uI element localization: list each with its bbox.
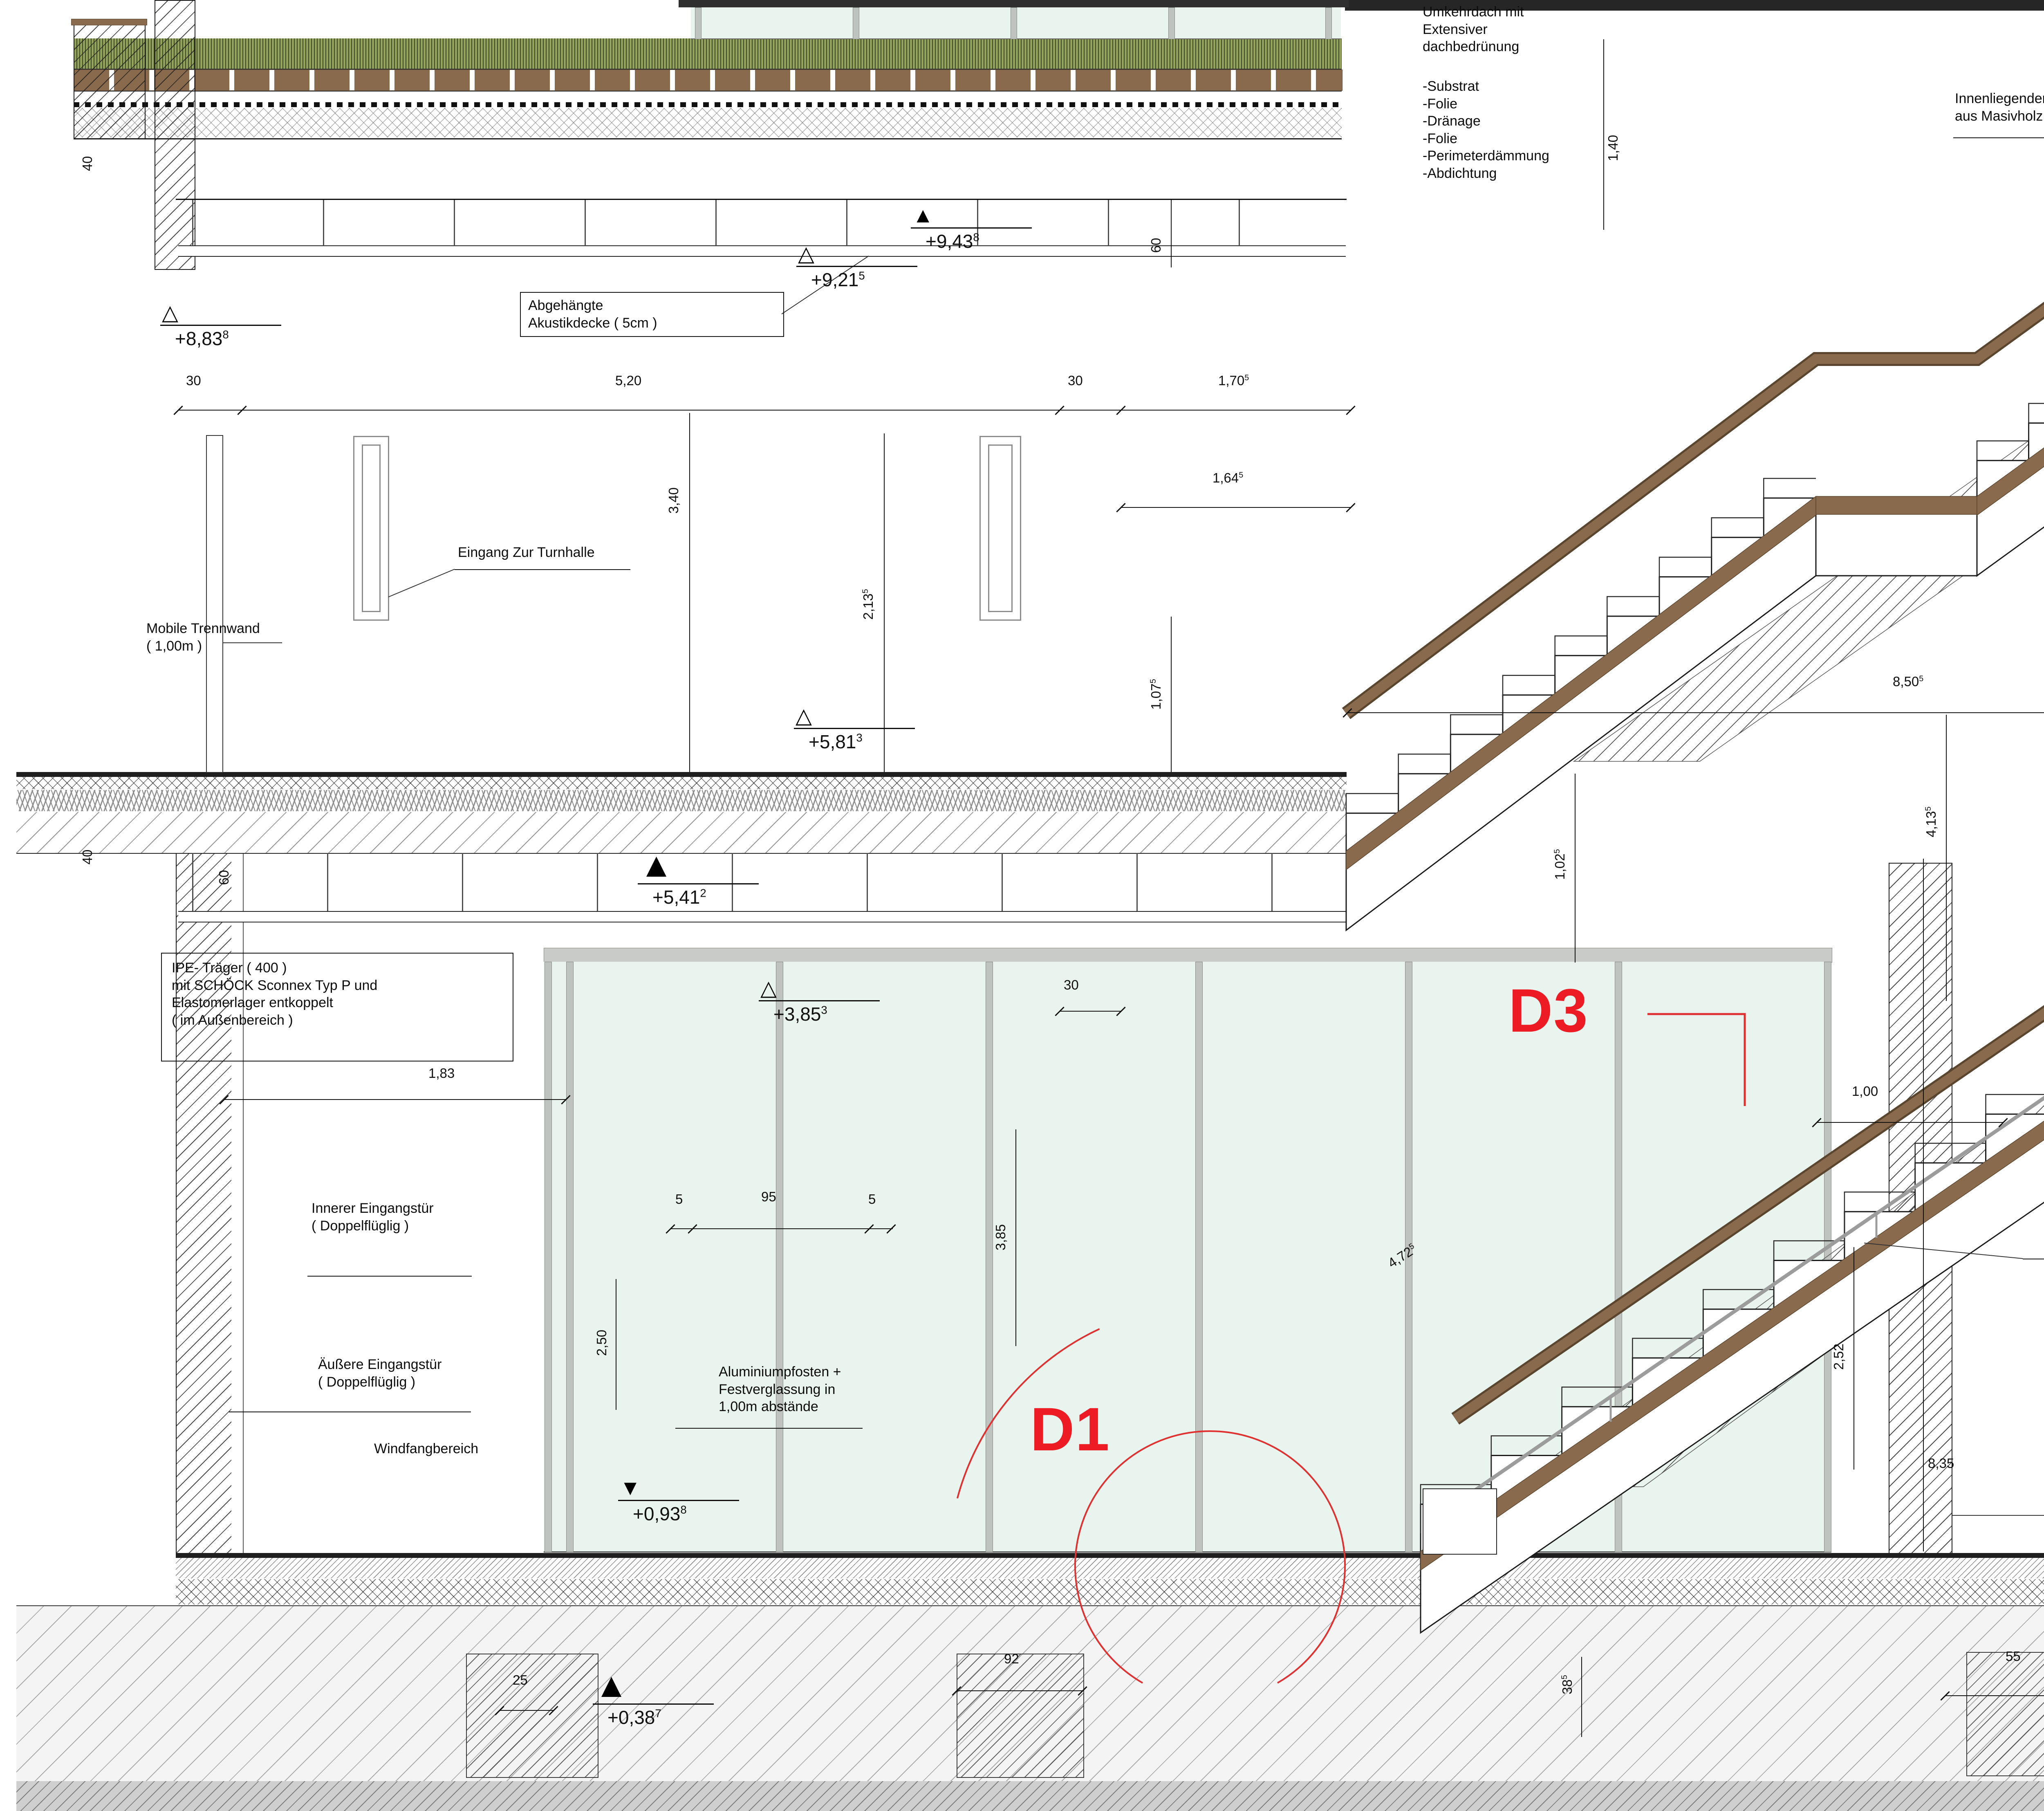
dimension-label: 1,025 [1552,849,1568,880]
elevation-superscript: 8 [973,231,979,244]
dimension-tick [237,406,247,415]
footing-pier [466,1654,598,1778]
ceiling-hanger [1136,853,1138,911]
elevation-superscript: 2 [700,887,706,900]
annotation-label: Mobile Trennwand ( 1,00m ) [146,620,260,655]
dimension-superscript: 5 [1924,806,1933,811]
aluminum-mullion [1195,962,1203,1552]
dimension-superscript: 5 [1149,679,1158,683]
ceiling-hanger [846,200,847,246]
stair-flight-slab [1977,11,2044,576]
elevation-marker: △+9,215 [796,266,917,291]
annotation-label: Innerer Eingangstür ( Doppelflüglig ) [312,1200,434,1234]
ceiling-hanger [585,200,586,246]
dimension-superscript: 5 [1919,674,1923,683]
handrail [1346,11,2044,714]
gym-roof-slab-soffit [176,199,1347,200]
ceiling-hanger [867,853,868,911]
ceiling-hanger [1108,200,1109,246]
annotation-label: Äußere Eingangstür ( Doppelflüglig ) [318,1356,442,1391]
ceiling-hanger [323,200,324,246]
dimension-label: 1,00 [1852,1084,1878,1099]
roof-board-layer [74,91,1342,103]
level-marker-icon: △ [796,705,812,727]
aluminum-mullion [1405,962,1412,1552]
ceiling-hanger [1271,853,1273,911]
lower-left-wall-lining [231,853,244,1554]
parapet-wood-cap [71,19,147,25]
roof-wood-deck [74,70,1342,91]
annotation-label: Eingang Zur Turnhalle [458,544,595,561]
footing-pier [1966,1652,2044,1776]
dimension-line [884,433,885,772]
gym-acoustic-ceiling [178,911,1346,922]
elevation-marker: △+5,813 [794,728,915,753]
dimension-value: 1,83 [428,1066,455,1081]
stair-base-block [1423,1488,1497,1555]
ceiling-hanger [462,853,463,911]
aluminum-mullion [853,7,859,39]
ceiling-hanger [454,200,455,246]
aluminum-mullion [545,962,552,1552]
annotation-label: -Substrat -Folie -Dränage -Folie -Perime… [1423,78,1549,182]
elevation-value: +5,41 [652,886,700,908]
dimension-value: 5,20 [615,373,641,388]
annotation-label: Innenliegender Handlauf aus Masivholz [1955,90,2044,125]
mobile-partition [206,435,223,773]
stair-flight-slab [1346,498,1816,930]
aluminum-mullion [566,962,574,1552]
aluminum-mullion [1168,7,1175,39]
dimension-label: 30 [1068,373,1083,388]
elevation-value: +9,21 [811,269,858,290]
handrail [1346,11,2044,714]
aluminum-mullion [1824,962,1831,1552]
dimension-superscript: 5 [861,589,870,593]
roof-parapet-wall [74,24,146,139]
dimension-tick [1116,406,1125,415]
dimension-line [1575,774,1576,963]
dimension-superscript: 5 [1553,849,1562,853]
curtain-wall-glazing [544,962,1831,1552]
dimension-label: 2,52 [1831,1344,1847,1370]
dimension-value: 1,02 [1552,853,1567,880]
upper-acoustic-ceiling [178,245,1346,257]
gym-door [353,436,389,621]
ceiling-hanger [192,200,193,246]
dimension-value: 2,13 [861,593,876,619]
dimension-value: 1,07 [1148,683,1163,709]
dimension-tick [1055,406,1064,415]
dimension-label: 1,645 [1213,470,1243,486]
dimension-line [1603,39,1604,230]
dimension-line [1347,712,2044,713]
aluminum-mullion [1325,7,1332,39]
elevation-superscript: 5 [858,269,865,282]
ceiling-hanger [732,853,733,911]
dimension-tick [173,406,183,415]
aluminum-mullion [986,962,993,1552]
dimension-tick [1346,406,1355,415]
dimension-value: 30 [186,373,201,388]
dimension-line [689,413,690,772]
upper-left-wall [155,0,195,270]
lower-left-wall [176,853,232,1555]
leader-line [388,569,455,597]
stair-wood-finish [1346,496,1816,870]
curtain-wall-sill [544,1551,1831,1553]
stair-steps [1346,478,1816,833]
green-roof-assembly [74,38,1342,139]
dimension-value: 1,64 [1213,470,1239,485]
stair-wood-finish [1977,9,2044,515]
dimension-value: 8,50 [1893,674,1919,689]
elevation-marker: △+8,838 [160,325,281,350]
aluminum-mullion [1615,962,1622,1552]
ceiling-hanger [715,200,717,246]
dimension-value: 1,40 [1605,135,1620,161]
elevation-value: +8,83 [175,328,222,349]
elevation-superscript: 3 [856,732,862,744]
elevation-value: +5,81 [809,731,856,752]
dimension-line [1953,137,2044,138]
dimension-label: 8,505 [1893,674,1923,689]
dimension-label: 1,40 [1605,135,1621,161]
curtain-wall-top-rail [544,948,1832,963]
dimension-value: 1,00 [1852,1084,1878,1099]
dimension-line [2023,1259,2044,1259]
dimension-label: 5,20 [615,373,641,388]
ceiling-hanger [327,853,328,911]
soil-layer [16,1781,2044,1811]
dimension-line [1171,200,1172,267]
dimension-label: 3,40 [666,487,681,514]
elevation-marker: ▲+5,412 [638,883,759,908]
dimension-value: 30 [1068,373,1083,388]
annotation-label: Umkehrdach mit Extensiver dachbedrünung [1423,3,1524,56]
dimension-label: 1,075 [1148,679,1164,709]
dimension-label: 1,705 [1218,373,1249,388]
ground-floor-slab [176,1553,2044,1605]
callout-box [520,292,784,337]
gym-floor-slab [16,772,1347,853]
dimension-label: 4,135 [1923,806,1939,837]
ceiling-hanger [1002,853,1003,911]
level-marker-icon: △ [162,302,178,323]
footing-pier [957,1654,1084,1778]
dimension-tick [1346,503,1355,512]
detail-marker-d3: D3 [1508,980,1589,1041]
dimension-line [178,410,1351,411]
aluminum-mullion [776,962,783,1552]
gym-door [979,436,1021,621]
facade-section-sheet: ← D1 D2 D3 BestandAbbruchNeu ( nicht gez… [0,0,2044,1811]
dimension-superscript: 5 [1244,373,1249,382]
ceiling-hanger [192,853,193,911]
dimension-label: 40 [80,156,95,171]
annotation-label: Windfangbereich [374,1440,478,1458]
detail-marker-d1: D1 [1030,1398,1110,1460]
dimension-line [1121,507,1351,508]
dimension-label: 1,83 [428,1066,455,1081]
ceiling-hanger [977,200,978,246]
dimension-line [1853,1247,1854,1470]
dimension-value: 4,13 [1923,811,1939,837]
stair-steps [1977,0,2044,478]
dimension-line [307,1276,472,1277]
dimension-line [1171,617,1172,772]
dimension-value: 3,40 [666,487,681,514]
dimension-line [455,569,630,570]
upper-glazing-slab-edge [679,0,1349,7]
dimension-tick [1342,708,1352,718]
dimension-superscript: 5 [1239,471,1243,480]
dimension-label: 30 [186,373,201,388]
roof-insulation-layer [74,108,1342,137]
dimension-line [224,1099,566,1100]
annotation-label: Abgehängte Akustikdecke ( 5cm ) [528,297,657,332]
dimension-label: 2,135 [861,589,876,619]
dimension-tick [1998,1118,2008,1127]
dimension-tick [1116,503,1125,512]
ceiling-hanger [597,853,598,911]
ceiling-hanger [1239,200,1240,246]
aluminum-mullion [695,7,702,39]
stairwell-concrete-wall [1889,863,1952,1555]
level-marker-icon: ▲ [912,205,933,226]
top-roof-slab [1345,0,2044,11]
roof-vegetation-layer [74,38,1342,70]
elevation-superscript: 8 [222,328,229,341]
dimension-value: 2,52 [1831,1344,1846,1370]
dimension-value: 40 [80,156,95,171]
roof-sealing-layer [74,102,1342,107]
leader-line [782,256,869,314]
aluminum-mullion [1011,7,1017,39]
dimension-line [229,1412,471,1412]
dimension-value: 1,70 [1218,373,1244,388]
